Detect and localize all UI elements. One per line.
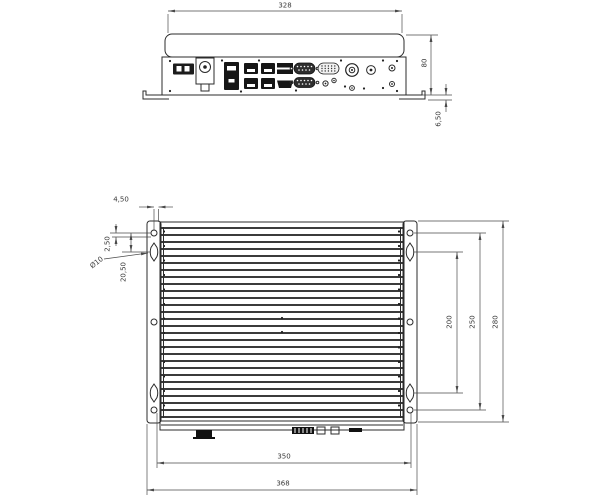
dim-label-250: 250: [470, 314, 477, 329]
dim-label-368: 368: [275, 481, 290, 488]
bottom-view: [104, 207, 509, 495]
led-indicator-1: [367, 66, 376, 75]
chassis-lid: [165, 34, 404, 57]
drawing-linework: [0, 0, 611, 503]
dim-label-200: 200: [447, 314, 454, 329]
drawing-canvas: 328 80 6,50 4,50 2,50 Ø10 20,50 200 250 …: [0, 0, 611, 503]
audio-jacks: [323, 78, 336, 86]
power-button: [196, 58, 214, 91]
dim-label-20-50: 20,50: [121, 261, 128, 283]
antenna-connector: [346, 64, 359, 77]
dc-jack: [350, 86, 355, 91]
usb-ports: [244, 63, 275, 89]
led-indicator-2: [389, 65, 395, 87]
mount-foot-left: [143, 91, 169, 99]
mount-plate-left: [147, 221, 161, 423]
mount-foot-right: [399, 91, 425, 99]
lan-port: [224, 62, 239, 90]
rear-panel: [162, 57, 406, 95]
dim-label-80: 80: [422, 58, 429, 69]
serial-com1: [290, 63, 319, 74]
dim-label-280: 280: [493, 314, 500, 329]
dim-width-328-lines: [168, 11, 402, 33]
dim-bracket-6-50-lines: [428, 84, 452, 112]
dim-label-328: 328: [277, 3, 292, 10]
dim-label-350: 350: [276, 454, 291, 461]
bottom-edge-connectors: [193, 427, 362, 439]
dim-label-2-50: 2,50: [105, 235, 112, 253]
mount-slots: [150, 243, 414, 402]
center-screw-1: [281, 317, 283, 319]
center-screw-2: [281, 331, 283, 333]
serial-com2: [290, 78, 319, 88]
dim-height-80-lines: [406, 35, 452, 95]
mount-holes: [151, 230, 413, 413]
chassis-body: [160, 222, 404, 430]
vga-port: [318, 63, 339, 74]
dim-topleft-lines: [104, 207, 173, 259]
dim-label-4-50: 4,50: [112, 197, 130, 204]
power-terminal-block: [173, 64, 194, 75]
top-view: [143, 11, 452, 112]
dim-label-6-50: 6,50: [436, 110, 443, 128]
